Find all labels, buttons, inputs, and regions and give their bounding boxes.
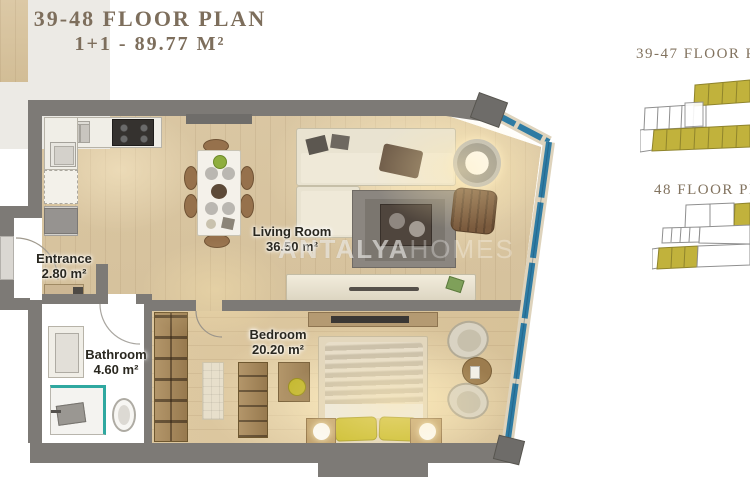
bathroom-door-arc [100, 304, 140, 344]
plan-title-line2: 1+1 - 89.77 M² [14, 33, 286, 56]
room-area: 36.50 m² [222, 240, 362, 255]
column [493, 435, 524, 465]
room-name: Entrance [12, 252, 116, 267]
bedroom-label: Bedroom 20.20 m² [226, 328, 330, 357]
keyplan1-title: 39-47 FLOOR P [636, 46, 750, 63]
room-name: Bedroom [226, 328, 330, 343]
bedroom-door-arc [196, 311, 222, 337]
room-name: Living Room [222, 225, 362, 240]
living-room-label: Living Room 36.50 m² [222, 225, 362, 254]
bathroom-label: Bathroom 4.60 m² [64, 348, 168, 377]
entrance-label: Entrance 2.80 m² [12, 252, 116, 281]
page-title: 39-48 FLOOR PLAN 1+1 - 89.77 M² [14, 6, 286, 56]
keyplan2-title: 48 FLOOR PL [654, 182, 750, 199]
floor-plan-page: 39-48 FLOOR PLAN 1+1 - 89.77 M² 39-47 FL… [0, 0, 750, 500]
room-area: 2.80 m² [12, 267, 116, 282]
room-area: 20.20 m² [226, 343, 330, 358]
room-area: 4.60 m² [64, 363, 168, 378]
plan-title-line1: 39-48 FLOOR PLAN [14, 6, 286, 32]
room-name: Bathroom [64, 348, 168, 363]
facade-windows-overlay [0, 0, 750, 500]
